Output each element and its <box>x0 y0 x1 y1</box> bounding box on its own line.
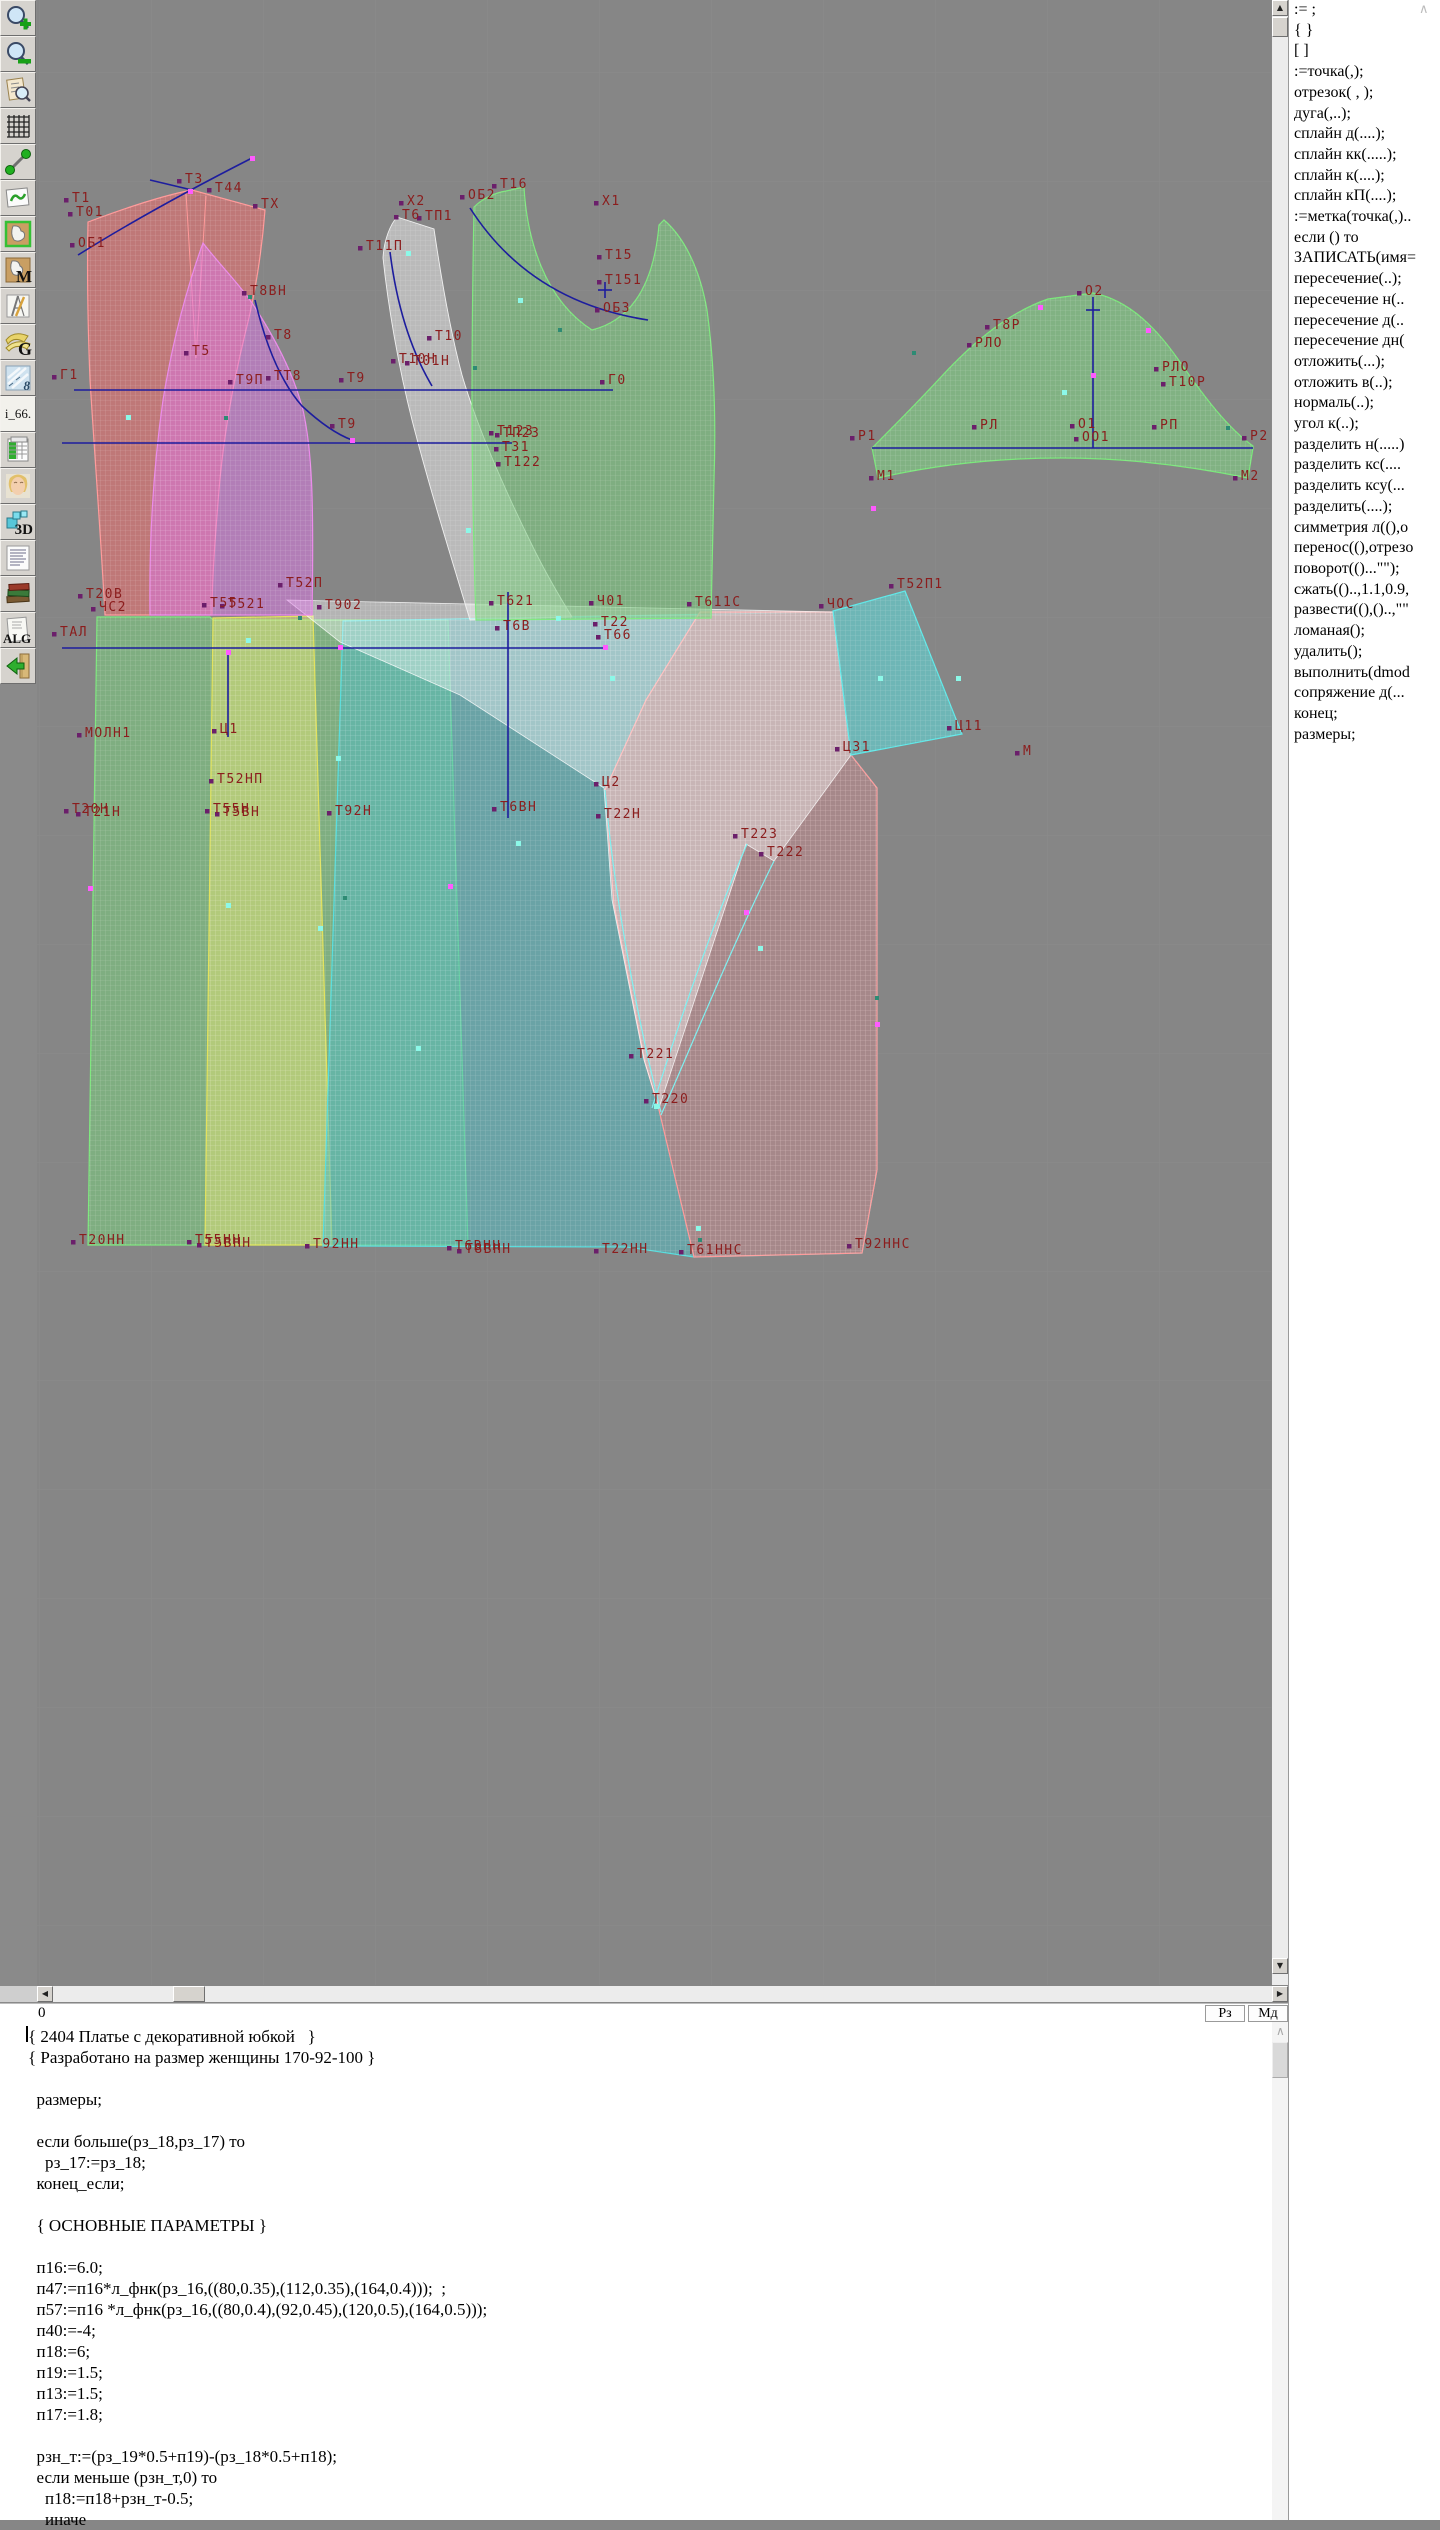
command-item[interactable]: дуга(,..); <box>1289 104 1440 125</box>
point-label[interactable]: ТХ <box>261 197 280 212</box>
command-item[interactable]: симметрия л((),о <box>1289 518 1440 539</box>
command-item[interactable]: отрезок( , ); <box>1289 83 1440 104</box>
command-item[interactable]: ЗАПИСАТЬ(имя= <box>1289 248 1440 269</box>
point-label[interactable]: Ц11 <box>955 719 983 734</box>
point-marker[interactable] <box>1161 382 1166 387</box>
command-item[interactable]: :=точка(,); <box>1289 62 1440 83</box>
point-marker[interactable] <box>1074 437 1079 442</box>
point-label[interactable]: Т11П <box>366 239 403 254</box>
sketch-ruler-icon[interactable]: 8 <box>0 360 36 396</box>
point-label[interactable]: Г0 <box>608 373 627 388</box>
point-label[interactable]: Т21Н <box>84 805 121 820</box>
point-label[interactable]: Т9 <box>338 417 357 432</box>
point-marker[interactable] <box>593 622 598 627</box>
point-label[interactable]: ОО1 <box>1082 430 1110 445</box>
code-scroll-up-icon[interactable]: ∧ <box>1276 2024 1285 2038</box>
command-item[interactable]: :=метка(точка(,).. <box>1289 207 1440 228</box>
point-marker[interactable] <box>589 601 594 606</box>
point-marker[interactable] <box>492 807 497 812</box>
point-marker[interactable] <box>460 195 465 200</box>
point-label[interactable]: Т223 <box>741 827 778 842</box>
point-label[interactable]: МОЛН1 <box>85 726 132 741</box>
point-label[interactable]: Т92ННС <box>855 1237 911 1252</box>
point-marker-cyan[interactable] <box>1062 390 1067 395</box>
canvas-hscroll-left-button[interactable]: ◀ <box>37 1986 53 2002</box>
algorithm-code[interactable]: { 2404 Платье с декоративной юбкой } { Р… <box>0 2022 1272 2530</box>
notch-marker <box>224 416 228 420</box>
point-marker[interactable] <box>187 1240 192 1245</box>
pattern-m-glyph: M <box>16 267 32 287</box>
point-marker-magenta[interactable] <box>871 506 876 511</box>
point-marker[interactable] <box>207 188 212 193</box>
point-marker[interactable] <box>596 635 601 640</box>
exit-icon[interactable] <box>0 648 36 684</box>
alg-icon[interactable]: ALG <box>0 612 36 648</box>
point-label[interactable]: Т31 <box>502 440 530 455</box>
point-marker-magenta[interactable] <box>448 884 453 889</box>
point-marker[interactable] <box>52 375 57 380</box>
point-marker-cyan[interactable] <box>518 298 523 303</box>
point-marker[interactable] <box>629 1054 634 1059</box>
point-label[interactable]: Т52П1 <box>897 577 944 592</box>
point-label[interactable]: Т9П <box>236 373 264 388</box>
point-marker[interactable] <box>394 215 399 220</box>
point-label[interactable]: Ц2 <box>602 775 621 790</box>
point-marker[interactable] <box>489 431 494 436</box>
point-label[interactable]: Т20НН <box>79 1233 126 1248</box>
point-label[interactable]: Т220 <box>652 1092 689 1107</box>
point-marker-cyan[interactable] <box>126 415 131 420</box>
point-marker-magenta[interactable] <box>875 1022 880 1027</box>
canvas-vscroll-thumb[interactable] <box>1272 17 1288 37</box>
point-label[interactable]: Т22Н <box>604 807 641 822</box>
point-label[interactable]: Т8 <box>274 328 293 343</box>
point-marker[interactable] <box>317 605 322 610</box>
command-item[interactable]: пересечение(..); <box>1289 269 1440 290</box>
point-label[interactable]: ЧОС <box>827 597 855 612</box>
point-marker-cyan[interactable] <box>336 756 341 761</box>
point-label[interactable]: Т5ВН <box>223 805 260 820</box>
point-marker[interactable] <box>494 447 499 452</box>
notch-marker <box>912 351 916 355</box>
point-marker[interactable] <box>594 201 599 206</box>
text-caret <box>26 2026 28 2042</box>
point-marker[interactable] <box>358 246 363 251</box>
point-label[interactable]: ОБ3 <box>603 301 631 316</box>
drawing-canvas[interactable]: Т1Т01ОБ1Т3Т44ТХТ8ВНТ8Т5Г1ТТ8Т9ПТ9Т9Х2Т6Т… <box>37 0 1272 1985</box>
point-marker[interactable] <box>597 280 602 285</box>
point-marker-magenta[interactable] <box>1146 328 1151 333</box>
point-label[interactable]: М <box>1023 744 1032 759</box>
point-label[interactable]: Т521 <box>228 597 265 612</box>
i66-button[interactable]: i_66. <box>0 396 36 432</box>
point-marker[interactable] <box>869 476 874 481</box>
point-label[interactable]: Ч01 <box>597 594 625 609</box>
notch-marker <box>698 1238 702 1242</box>
status-value: 0 <box>38 2005 46 2022</box>
point-marker[interactable] <box>177 179 182 184</box>
rz-button[interactable]: Рз <box>1205 2005 1245 2022</box>
point-label[interactable]: М2 <box>1241 469 1260 484</box>
command-item[interactable]: сплайн к(....); <box>1289 166 1440 187</box>
canvas-vscroll-down-button[interactable]: ▼ <box>1272 1958 1288 1974</box>
size-table-icon[interactable] <box>0 432 36 468</box>
md-button[interactable]: Мд <box>1248 2005 1288 2022</box>
point-marker[interactable] <box>597 255 602 260</box>
canvas-hscroll-thumb[interactable] <box>173 1986 205 2002</box>
point-marker[interactable] <box>679 1250 684 1255</box>
status-bar: 0 Рз Мд <box>0 2003 1288 2022</box>
point-marker[interactable] <box>330 424 335 429</box>
point-label[interactable]: Т9 <box>347 371 366 386</box>
command-item[interactable]: угол к(..); <box>1289 414 1440 435</box>
command-item[interactable]: сплайн д(....); <box>1289 124 1440 145</box>
point-marker-magenta[interactable] <box>226 650 231 655</box>
canvas-hscroll-right-button[interactable]: ▶ <box>1272 1986 1288 2002</box>
point-marker[interactable] <box>595 308 600 313</box>
canvas-hscrollbar[interactable] <box>37 1986 1288 2002</box>
gradation-g-glyph: G <box>18 339 32 360</box>
point-marker[interactable] <box>489 601 494 606</box>
canvas-vscroll-up-button[interactable]: ▲ <box>1272 0 1288 16</box>
point-marker[interactable] <box>1233 476 1238 481</box>
print-preview-icon[interactable] <box>0 72 36 108</box>
command-item[interactable]: сплайн кк(.....); <box>1289 145 1440 166</box>
3d-glyph: 3D <box>15 522 33 539</box>
command-item[interactable]: нормаль(..); <box>1289 393 1440 414</box>
point-label[interactable]: Г1 <box>60 368 79 383</box>
point-label[interactable]: ТТ8 <box>274 369 302 384</box>
drafting-tools-icon[interactable] <box>0 288 36 324</box>
point-marker-cyan[interactable] <box>466 528 471 533</box>
notch-marker <box>558 328 562 332</box>
point-marker[interactable] <box>985 325 990 330</box>
point-marker[interactable] <box>278 583 283 588</box>
point-marker[interactable] <box>496 462 501 467</box>
point-marker[interactable] <box>253 204 258 209</box>
point-marker-cyan[interactable] <box>318 926 323 931</box>
algorithm-text-area[interactable]: { 2404 Платье с декоративной юбкой } { Р… <box>0 2022 1272 2520</box>
point-marker[interactable] <box>228 380 233 385</box>
command-item[interactable]: удалить(); <box>1289 642 1440 663</box>
point-label[interactable]: Т6ВН <box>500 800 537 815</box>
point-label[interactable]: Т151 <box>605 273 642 288</box>
point-marker-cyan[interactable] <box>556 616 561 621</box>
notch-marker <box>343 896 347 900</box>
point-marker[interactable] <box>594 1249 599 1254</box>
command-item[interactable]: сжать(()..,1.1,0.9, <box>1289 580 1440 601</box>
command-list: := ;{ }[ ]:=точка(,);отрезок( , );дуга(,… <box>1289 0 1440 745</box>
pattern-piece-icon[interactable] <box>0 216 36 252</box>
command-item[interactable]: разделить н(.....) <box>1289 435 1440 456</box>
point-marker[interactable] <box>835 747 840 752</box>
point-marker[interactable] <box>644 1099 649 1104</box>
point-marker[interactable] <box>594 782 599 787</box>
point-marker-magenta[interactable] <box>250 156 255 161</box>
notch-marker <box>473 366 477 370</box>
point-marker-magenta[interactable] <box>88 886 93 891</box>
point-marker[interactable] <box>78 594 83 599</box>
pattern-cad-app: { "toolbar": { "glyphs": { "m": "M", "g"… <box>0 0 1440 2520</box>
point-marker[interactable] <box>64 198 69 203</box>
point-marker-magenta[interactable] <box>188 189 193 194</box>
command-item[interactable]: разделить кс(.... <box>1289 455 1440 476</box>
point-marker-cyan[interactable] <box>226 903 231 908</box>
point-marker-cyan[interactable] <box>758 946 763 951</box>
point-label[interactable]: Ц31 <box>843 740 871 755</box>
point-marker[interactable] <box>184 351 189 356</box>
command-item[interactable]: сплайн кП(....); <box>1289 186 1440 207</box>
point-label[interactable]: Т8ВН <box>250 284 287 299</box>
point-label[interactable]: ТП1 <box>425 209 453 224</box>
command-item[interactable]: [ ] <box>1289 41 1440 62</box>
notch-marker <box>298 616 302 620</box>
point-label[interactable]: Т122 <box>504 455 541 470</box>
point-label[interactable]: Х1 <box>602 194 621 209</box>
point-label[interactable]: Т3 <box>185 172 204 187</box>
point-marker[interactable] <box>399 201 404 206</box>
command-item[interactable]: пересечение н(.. <box>1289 290 1440 311</box>
point-marker[interactable] <box>91 607 96 612</box>
point-marker-cyan[interactable] <box>516 841 521 846</box>
point-label[interactable]: Ц1 <box>220 722 239 737</box>
point-label[interactable]: РП <box>1160 418 1179 433</box>
point-label[interactable]: Т01Н <box>413 354 450 369</box>
point-label[interactable]: Т66 <box>604 628 632 643</box>
point-marker-magenta[interactable] <box>338 645 343 650</box>
point-label[interactable]: ТП23 <box>503 426 540 441</box>
point-label[interactable]: ЧС2 <box>99 600 127 615</box>
point-label[interactable]: Т16 <box>500 177 528 192</box>
point-label[interactable]: РЛО <box>1162 360 1190 375</box>
point-marker[interactable] <box>327 811 332 816</box>
point-marker[interactable] <box>819 604 824 609</box>
books-icon[interactable] <box>0 576 36 612</box>
image-view-icon[interactable] <box>0 180 36 216</box>
command-item[interactable]: разделить(....); <box>1289 497 1440 518</box>
command-item[interactable]: развести((),()..,"" <box>1289 600 1440 621</box>
point-marker[interactable] <box>427 336 432 341</box>
3d-icon[interactable]: 3D <box>0 504 36 540</box>
grid-icon[interactable] <box>0 108 36 144</box>
point-marker[interactable] <box>1154 367 1159 372</box>
measure-line-icon[interactable] <box>0 144 36 180</box>
text-list-icon[interactable] <box>0 540 36 576</box>
point-marker[interactable] <box>600 380 605 385</box>
code-vscroll-thumb[interactable] <box>1272 2042 1288 2078</box>
command-item[interactable]: сопряжение д(... <box>1289 683 1440 704</box>
command-item[interactable]: пересечение д(.. <box>1289 311 1440 332</box>
point-label[interactable]: Т52П <box>286 576 323 591</box>
point-marker[interactable] <box>687 602 692 607</box>
point-label[interactable]: Т10Р <box>1169 375 1206 390</box>
point-marker[interactable] <box>1077 291 1082 296</box>
point-marker[interactable] <box>495 626 500 631</box>
point-label[interactable]: Р1 <box>858 429 877 444</box>
point-label[interactable]: Т902 <box>325 598 362 613</box>
point-label[interactable]: М1 <box>877 469 896 484</box>
zoom-out-icon[interactable] <box>0 36 36 72</box>
point-label[interactable]: Т221 <box>637 1047 674 1062</box>
zoom-in-icon[interactable] <box>0 0 36 36</box>
point-label[interactable]: ОБ2 <box>468 188 496 203</box>
command-item[interactable]: перенос((),отрезо <box>1289 538 1440 559</box>
command-item[interactable]: пересечение дн( <box>1289 331 1440 352</box>
alg-glyph: ALG <box>3 631 31 647</box>
scrollbar-corner <box>0 1986 37 2002</box>
point-label[interactable]: Т8ВНН <box>465 1242 512 1257</box>
point-marker[interactable] <box>1242 436 1247 441</box>
command-item[interactable]: отложить в(..); <box>1289 373 1440 394</box>
point-label[interactable]: Т52НП <box>217 772 264 787</box>
point-marker[interactable] <box>391 359 396 364</box>
point-marker[interactable] <box>212 729 217 734</box>
point-marker-magenta[interactable] <box>1038 305 1043 310</box>
point-label[interactable]: Т61ННС <box>687 1243 743 1258</box>
point-label[interactable]: ОБ1 <box>78 236 106 251</box>
point-marker[interactable] <box>266 376 271 381</box>
point-label[interactable]: Т92НН <box>313 1237 360 1252</box>
point-marker-cyan[interactable] <box>416 1046 421 1051</box>
point-marker[interactable] <box>889 584 894 589</box>
point-label[interactable]: Т8Р <box>993 318 1021 333</box>
command-item[interactable]: конец; <box>1289 704 1440 725</box>
point-marker[interactable] <box>52 632 57 637</box>
panel-scroll-up-icon[interactable]: ∧ <box>1419 2 1429 17</box>
point-marker[interactable] <box>70 243 75 248</box>
point-marker[interactable] <box>242 291 247 296</box>
point-label[interactable]: РЛ <box>980 418 999 433</box>
point-marker-magenta[interactable] <box>350 438 355 443</box>
point-label[interactable]: Т22НН <box>602 1242 649 1257</box>
command-item[interactable]: { } <box>1289 21 1440 42</box>
point-label[interactable]: Х2 <box>407 194 426 209</box>
notch-marker <box>1226 426 1230 430</box>
point-label[interactable]: ТАЛ <box>60 625 88 640</box>
point-label[interactable]: Т621 <box>497 594 534 609</box>
point-marker[interactable] <box>596 814 601 819</box>
point-marker[interactable] <box>209 779 214 784</box>
command-item[interactable]: если () то <box>1289 228 1440 249</box>
command-item[interactable]: размеры; <box>1289 725 1440 746</box>
point-marker-cyan[interactable] <box>246 638 251 643</box>
portrait-icon[interactable] <box>0 468 36 504</box>
point-marker[interactable] <box>850 436 855 441</box>
notch-marker <box>875 996 879 1000</box>
i66-label: i_66. <box>5 406 31 422</box>
point-label[interactable]: Т01 <box>76 205 104 220</box>
point-marker[interactable] <box>339 378 344 383</box>
point-marker-cyan[interactable] <box>878 676 883 681</box>
point-marker-cyan[interactable] <box>696 1226 701 1231</box>
point-marker[interactable] <box>202 603 207 608</box>
point-marker-magenta[interactable] <box>744 910 749 915</box>
point-marker[interactable] <box>266 335 271 340</box>
point-marker-magenta[interactable] <box>603 645 608 650</box>
point-marker[interactable] <box>71 1240 76 1245</box>
command-item[interactable]: := ; <box>1289 0 1440 21</box>
command-item[interactable]: отложить(...); <box>1289 352 1440 373</box>
point-label[interactable]: РЛО <box>975 336 1003 351</box>
point-marker[interactable] <box>305 1244 310 1249</box>
point-marker[interactable] <box>205 809 210 814</box>
sketch-ruler-glyph: 8 <box>24 378 31 394</box>
point-marker[interactable] <box>77 733 82 738</box>
point-label[interactable]: Т10 <box>435 329 463 344</box>
code-vscrollbar[interactable] <box>1272 2022 1288 2520</box>
point-marker-cyan[interactable] <box>406 251 411 256</box>
point-marker[interactable] <box>733 834 738 839</box>
command-item[interactable]: выполнить(dmod <box>1289 663 1440 684</box>
point-label[interactable]: Т15 <box>605 248 633 263</box>
point-marker[interactable] <box>847 1244 852 1249</box>
point-label[interactable]: Т6 <box>402 208 421 223</box>
point-marker[interactable] <box>947 726 952 731</box>
point-label[interactable]: Т611С <box>695 595 742 610</box>
pattern-m-icon[interactable]: M <box>0 252 36 288</box>
point-marker[interactable] <box>1015 751 1020 756</box>
point-marker[interactable] <box>972 425 977 430</box>
gradation-g-icon[interactable]: G <box>0 324 36 360</box>
point-label[interactable]: Т1 <box>72 191 91 206</box>
point-label[interactable]: О2 <box>1085 284 1104 299</box>
point-label[interactable]: Т222 <box>767 845 804 860</box>
point-label[interactable]: Т92Н <box>335 804 372 819</box>
point-marker[interactable] <box>759 852 764 857</box>
point-marker[interactable] <box>68 212 73 217</box>
point-label[interactable]: Т44 <box>215 181 243 196</box>
point-marker-magenta[interactable] <box>1091 373 1096 378</box>
point-marker-cyan[interactable] <box>610 676 615 681</box>
point-marker[interactable] <box>447 1246 452 1251</box>
point-marker[interactable] <box>1070 424 1075 429</box>
pattern-piece-skirt-yellow[interactable] <box>205 616 332 1245</box>
canvas-vscrollbar[interactable] <box>1272 0 1288 1985</box>
point-marker[interactable] <box>967 343 972 348</box>
command-item[interactable]: ломаная(); <box>1289 621 1440 642</box>
point-label[interactable]: Т5ВНН <box>205 1236 252 1251</box>
point-marker[interactable] <box>64 809 69 814</box>
point-label[interactable]: Т6В <box>503 619 531 634</box>
command-list-panel: := ;{ }[ ]:=точка(,);отрезок( , );дуга(,… <box>1288 0 1440 2520</box>
point-label[interactable]: Р2 <box>1250 429 1269 444</box>
point-marker-cyan[interactable] <box>956 676 961 681</box>
command-item[interactable]: поворот(()...""); <box>1289 559 1440 580</box>
point-marker[interactable] <box>1152 425 1157 430</box>
point-label[interactable]: Т5 <box>192 344 211 359</box>
command-item[interactable]: разделить ксу(... <box>1289 476 1440 497</box>
